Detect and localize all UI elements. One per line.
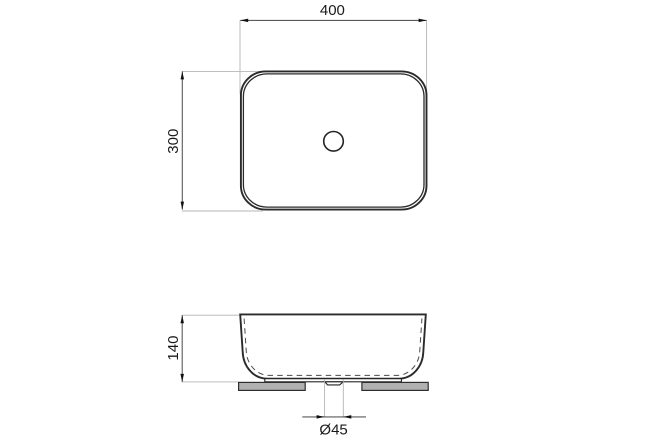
svg-text:400: 400 — [320, 2, 345, 19]
svg-text:Ø45: Ø45 — [319, 421, 347, 438]
svg-text:140: 140 — [165, 336, 182, 361]
svg-text:300: 300 — [165, 129, 182, 154]
